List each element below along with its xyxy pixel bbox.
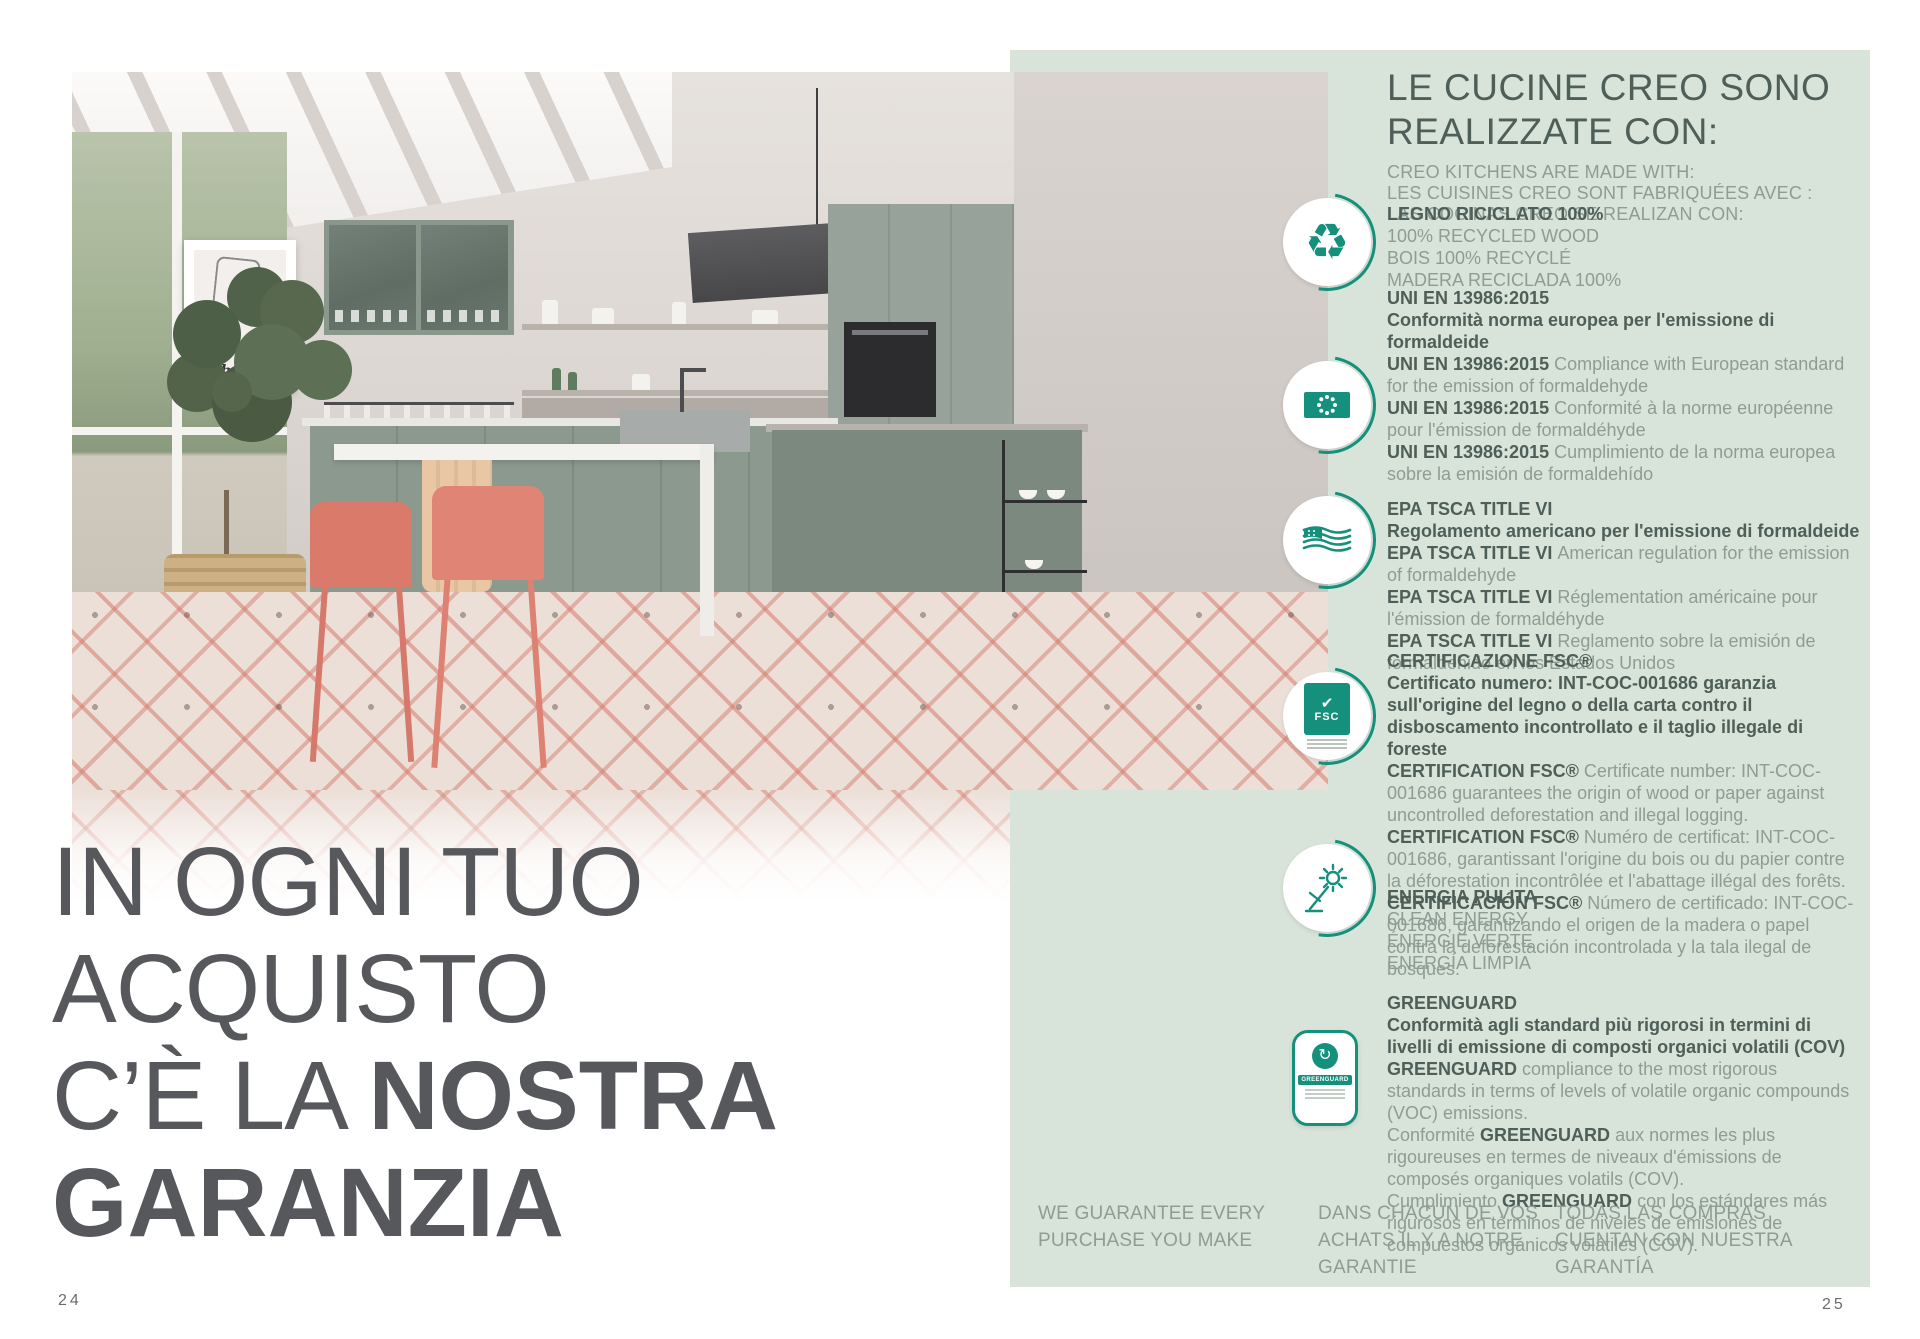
eu-flag-icon [1283,361,1371,449]
photo-table-top [334,444,714,460]
photo-vase [592,308,614,324]
certification-heading: CERTIFICAZIONE FSC® [1387,650,1861,672]
headline-line3: C’È LA NOSTRA [52,1042,778,1149]
photo-bowl [632,374,650,390]
guarantee-line: ACHATS IL Y A NOTRE [1318,1227,1538,1254]
certification-heading: Conformità norma europea per l'emissione… [1387,309,1861,353]
certification-block: UNI EN 13986:2015Conformità norma europe… [1387,287,1861,485]
guarantee-line: CUENTAN CON NUESTRA [1555,1227,1793,1254]
photo-plant [212,372,252,412]
photo-table-side [700,444,714,636]
certification-text: UNI EN 13986:2015Conformità norma europe… [1387,287,1861,485]
certification-entry: ÉNERGIE VERTE [1387,930,1861,952]
certification-entry: BOIS 100% RECYCLÉ [1387,247,1861,269]
headline-line3-light: C’È LA [52,1041,369,1150]
guarantee-line: TODAS LAS COMPRAS [1555,1200,1793,1227]
guarantee-column: TODAS LAS COMPRASCUENTAN CON NUESTRAGARA… [1555,1200,1793,1281]
guarantee-line: PURCHASE YOU MAKE [1038,1227,1265,1254]
photo-plant-trunk [224,490,229,560]
certification-heading: EPA TSCA TITLE VI [1387,498,1861,520]
headline-line1: IN OGNI TUO [52,828,778,935]
greenguard-icon: ↻GREENGUARD [1292,1030,1358,1126]
certification-entry: CERTIFICATION FSC® Numéro de certificat:… [1387,826,1861,892]
photo-hood-cord [816,88,818,228]
certification-entry: GREENGUARD compliance to the most rigoro… [1387,1058,1861,1124]
photo-faucet [680,368,684,412]
photo-vase [752,310,778,324]
certification-heading: ENERGIA PULITA [1387,886,1861,908]
certification-heading: Regolamento americano per l'emissione di… [1387,520,1861,542]
photo-bottle [568,372,577,390]
glass-cabinet-door [421,225,508,330]
photo-vase [542,300,558,324]
photo-countertop [302,418,838,426]
photo-poster-frame: Thonet [184,240,296,392]
guarantee-line: WE GUARANTEE EVERY [1038,1200,1265,1227]
photo-coral-chair [432,486,544,580]
certification-entry: 100% RECYCLED WOOD [1387,225,1861,247]
subtitle-line: LES CUISINES CREO SONT FABRIQUÉES AVEC : [1387,183,1812,204]
certification-block: EPA TSCA TITLE VIRegolamento americano p… [1387,498,1861,674]
certification-entry: UNI EN 13986:2015 Conformité à la norme … [1387,397,1861,441]
certification-heading: Certificato numero: INT-COC-001686 garan… [1387,672,1861,760]
photo-vase [672,302,686,324]
certification-block: ♻LEGNO RICICLATO 100%100% RECYCLED WOODB… [1387,203,1861,291]
recycle-icon: ♻ [1283,198,1371,286]
headline-line2: ACQUISTO [52,935,778,1042]
guarantee-line: GARANTÍA [1555,1254,1793,1281]
window-mullion [72,427,287,435]
certification-heading: GREENGUARD [1387,992,1861,1014]
certification-entry: EPA TSCA TITLE VI Réglementation américa… [1387,586,1861,630]
page-number-right: 25 [1822,1296,1846,1314]
certification-text: ENERGIA PULITACLEAN ENERGYÉNERGIE VERTEE… [1387,886,1861,974]
clean-energy-icon [1283,844,1371,932]
panel-title-line2: REALIZZATE CON: [1387,110,1830,154]
certification-block: ENERGIA PULITACLEAN ENERGYÉNERGIE VERTEE… [1387,886,1861,974]
panel-title-line1: LE CUCINE CREO SONO [1387,66,1830,110]
panel-title: LE CUCINE CREO SONO REALIZZATE CON: [1387,66,1830,154]
certification-entry: ENERGÍA LIMPIA [1387,952,1861,974]
certification-heading: LEGNO RICICLATO 100% [1387,203,1861,225]
photo-open-shelf [522,390,832,396]
glass-cabinet-door [329,225,416,330]
poster-chair-sketch [211,256,261,320]
guarantee-line: GARANTIE [1318,1254,1538,1281]
window-mullion [172,132,182,602]
photo-oven [844,322,936,417]
certification-heading: Conformità agli standard più rigorosi in… [1387,1014,1861,1058]
certification-entry: UNI EN 13986:2015 Cumplimiento de la nor… [1387,441,1861,485]
info-panel: LE CUCINE CREO SONO REALIZZATE CON: CREO… [1010,50,1870,1287]
photo-coral-chair [310,502,412,588]
guarantee-column: WE GUARANTEE EVERYPURCHASE YOU MAKE [1038,1200,1265,1254]
fsc-icon: ✔FSC [1283,672,1371,760]
page-number-left: 24 [58,1292,82,1310]
certification-heading: UNI EN 13986:2015 [1387,287,1861,309]
certification-entry: EPA TSCA TITLE VI American regulation fo… [1387,542,1861,586]
photo-open-shelf [522,324,832,330]
certification-entry: CERTIFICATION FSC® Certificate number: I… [1387,760,1861,826]
certification-entry: Conformité GREENGUARD aux normes les plu… [1387,1124,1861,1190]
certification-text: EPA TSCA TITLE VIRegolamento americano p… [1387,498,1861,674]
catalog-spread: Thonet [0,0,1920,1339]
photo-faucet [680,368,706,372]
us-flag-icon [1283,496,1371,584]
headline-line4: GARANZIA [52,1149,778,1256]
certification-entry: UNI EN 13986:2015 Compliance with Europe… [1387,353,1861,397]
photo-glass-cabinet [324,220,514,335]
headline-line3-bold: NOSTRA [369,1041,779,1150]
guarantee-line: DANS CHACUN DE VOS [1318,1200,1538,1227]
certification-entry: CLEAN ENERGY [1387,908,1861,930]
photo-bottle [552,368,561,390]
certification-text: LEGNO RICICLATO 100%100% RECYCLED WOODBO… [1387,203,1861,291]
guarantee-column: DANS CHACUN DE VOSACHATS IL Y A NOTREGAR… [1318,1200,1538,1281]
page-headline: IN OGNI TUO ACQUISTO C’È LA NOSTRA GARAN… [52,828,778,1256]
subtitle-line: CREO KITCHENS ARE MADE WITH: [1387,162,1812,183]
